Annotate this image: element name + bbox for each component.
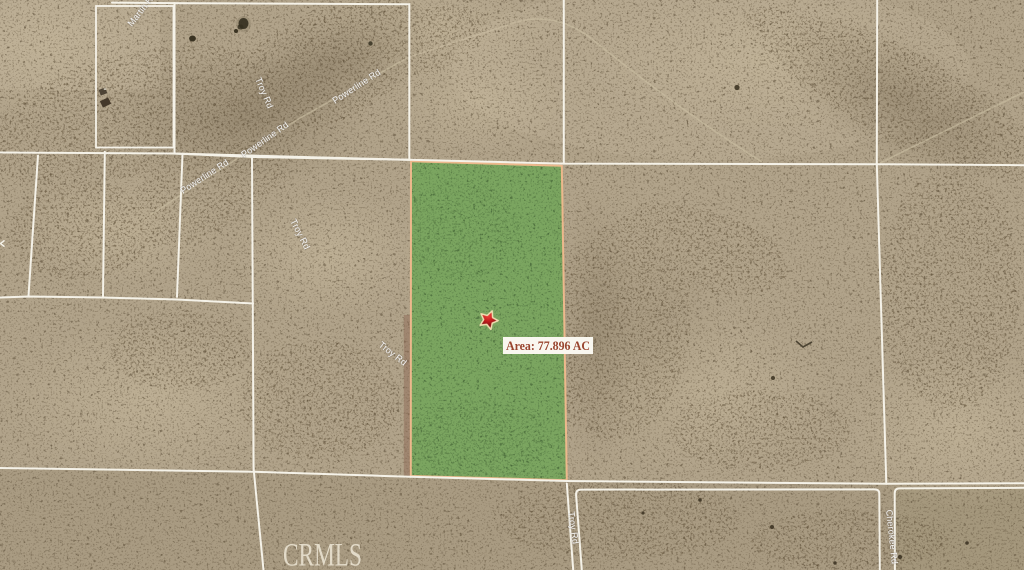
svg-text:CRMLS: CRMLS (283, 538, 362, 570)
svg-text:Area: 77.896 AC: Area: 77.896 AC (506, 338, 590, 353)
